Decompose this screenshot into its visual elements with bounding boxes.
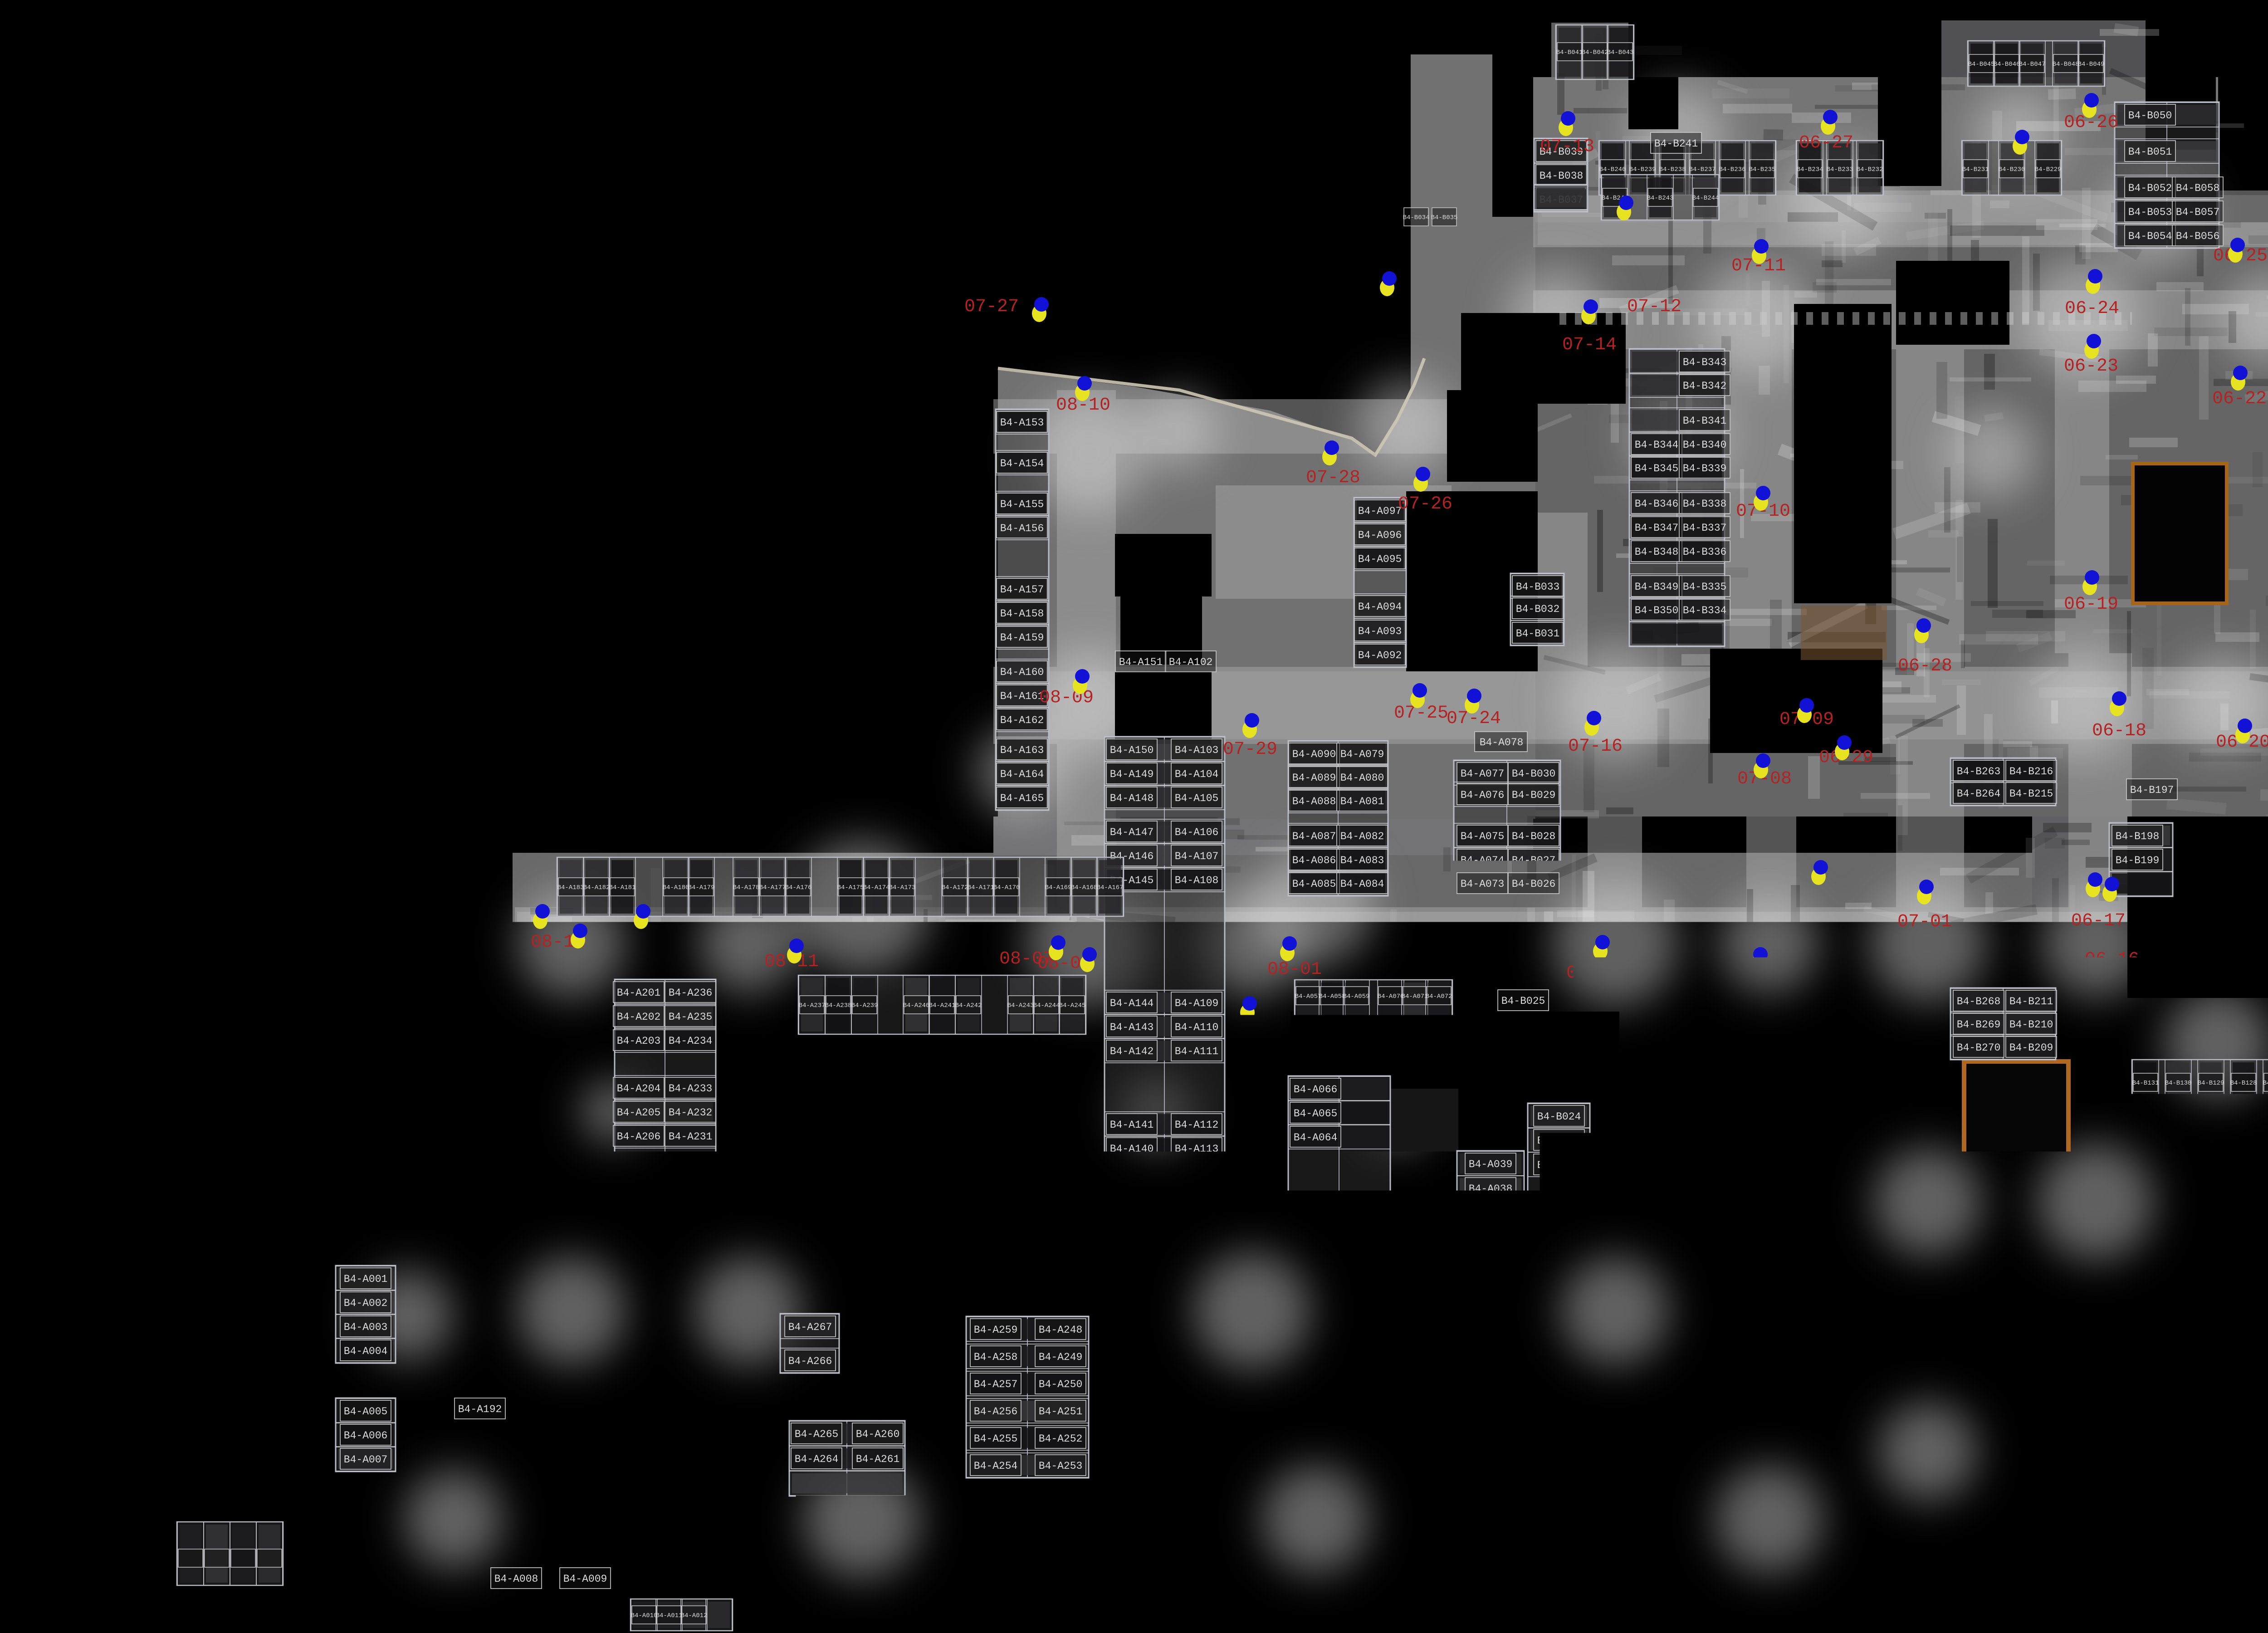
svg-text:B4-B201: B4-B201	[1958, 1544, 1984, 1551]
svg-text:B4-A132: B4-A132	[1110, 1415, 1154, 1427]
svg-text:B4-A154: B4-A154	[1000, 458, 1044, 469]
svg-text:B4-B183: B4-B183	[2168, 417, 2212, 429]
svg-text:B4-B367: B4-B367	[1651, 1603, 1695, 1615]
svg-text:B4-B316: B4-B316	[1799, 1157, 1843, 1169]
svg-text:B4-B365: B4-B365	[1651, 1544, 1695, 1556]
svg-text:B4-A093: B4-A093	[1358, 626, 1402, 637]
svg-text:B4-A226: B4-A226	[669, 1299, 713, 1311]
svg-text:B4-B058: B4-B058	[2176, 182, 2220, 194]
svg-text:B4-A216: B4-A216	[617, 1468, 661, 1480]
svg-text:B4-A005: B4-A005	[344, 1406, 388, 1418]
svg-text:B4-A116: B4-A116	[1175, 1240, 1219, 1252]
svg-text:B4-A168: B4-A168	[1071, 884, 1098, 891]
svg-text:B4-B215: B4-B215	[2009, 788, 2053, 800]
svg-text:B4-B182: B4-B182	[2168, 441, 2212, 453]
svg-text:B4-B315: B4-B315	[1799, 1123, 1843, 1134]
svg-text:B4-B225: B4-B225	[2006, 417, 2050, 429]
svg-text:B4-A172: B4-A172	[942, 884, 968, 891]
svg-text:B4-A074: B4-A074	[1461, 855, 1505, 866]
svg-text:B4-B293: B4-B293	[1850, 831, 1894, 843]
svg-text:B4-A156: B4-A156	[1000, 523, 1044, 534]
svg-text:B4-B321: B4-B321	[1799, 1285, 1843, 1296]
svg-text:B4-B306: B4-B306	[1799, 788, 1843, 800]
svg-text:B4-B259: B4-B259	[1953, 548, 1997, 560]
svg-text:B4-A073: B4-A073	[1461, 878, 1505, 890]
svg-text:B4-A119: B4-A119	[1175, 1339, 1219, 1351]
svg-text:B4-B268: B4-B268	[1957, 996, 2001, 1007]
svg-text:B4-A230: B4-A230	[669, 1179, 713, 1191]
svg-text:B4-A121: B4-A121	[1175, 1415, 1219, 1427]
svg-text:B4-A160: B4-A160	[1000, 666, 1044, 678]
svg-text:B4-A106: B4-A106	[1175, 826, 1219, 838]
svg-text:B4-A058: B4-A058	[1294, 1364, 1338, 1375]
svg-text:B4-B292: B4-B292	[1850, 852, 1894, 864]
svg-text:B4-B027: B4-B027	[1512, 855, 1556, 866]
svg-text:B4-B017: B4-B017	[1537, 1339, 1581, 1350]
svg-text:08-18: 08-18	[377, 1541, 432, 1561]
svg-text:B4-A089: B4-A089	[1292, 772, 1336, 784]
svg-text:B4-B346: B4-B346	[1635, 498, 1679, 510]
svg-text:B4-A192: B4-A192	[458, 1403, 502, 1415]
svg-text:B4-B232: B4-B232	[1857, 166, 1883, 173]
svg-text:B4-B310: B4-B310	[1811, 976, 1887, 996]
svg-text:B4-A197: B4-A197	[513, 1261, 557, 1272]
svg-text:B4-B198: B4-B198	[2116, 831, 2160, 842]
svg-text:B4-B031: B4-B031	[1516, 628, 1560, 640]
svg-text:B4-B238: B4-B238	[1659, 166, 1686, 173]
svg-text:B4-B202: B4-B202	[1917, 1544, 1944, 1551]
svg-text:B4-A102: B4-A102	[1169, 656, 1213, 668]
svg-text:B4-B314: B4-B314	[1799, 1099, 1843, 1111]
svg-text:B4-B237: B4-B237	[1689, 166, 1716, 173]
svg-text:B4-B330: B4-B330	[1702, 831, 1746, 843]
svg-text:B4-B363: B4-B363	[1652, 1372, 1696, 1384]
svg-text:B4-B013: B4-B013	[1537, 1460, 1581, 1472]
svg-text:B4-B015: B4-B015	[1537, 1412, 1581, 1423]
svg-text:B4-A117: B4-A117	[1175, 1264, 1219, 1276]
svg-text:B4-A259: B4-A259	[974, 1324, 1018, 1336]
svg-text:B4-B313: B4-B313	[1799, 1076, 1843, 1088]
svg-text:B4-B280: B4-B280	[1850, 1261, 1894, 1273]
svg-text:B4-B194: B4-B194	[2116, 572, 2160, 583]
svg-text:B4-A075: B4-A075	[1461, 831, 1505, 842]
svg-text:B4-B277: B4-B277	[1849, 1349, 1893, 1361]
svg-text:B4-A141: B4-A141	[1110, 1119, 1154, 1131]
svg-text:B4-A177: B4-A177	[759, 884, 786, 891]
svg-text:B4-B349: B4-B349	[1635, 581, 1679, 593]
svg-text:B4-A028: B4-A028	[1469, 1558, 1513, 1569]
svg-text:B4-A253: B4-A253	[1039, 1460, 1083, 1472]
svg-text:B4-B320: B4-B320	[1799, 1261, 1843, 1273]
svg-text:B4-B338: B4-B338	[1683, 498, 1727, 510]
svg-text:B4-A167: B4-A167	[1097, 884, 1124, 891]
svg-text:B4-B343: B4-B343	[1683, 357, 1727, 368]
svg-text:B4-B203: B4-B203	[1874, 1544, 1901, 1551]
svg-text:B4-A251: B4-A251	[1039, 1406, 1083, 1418]
svg-text:B4-A235: B4-A235	[669, 1011, 713, 1023]
svg-text:B4-B204: B4-B204	[1838, 1544, 1864, 1551]
svg-text:B4-B056: B4-B056	[2176, 230, 2220, 242]
svg-text:B4-B219: B4-B219	[2006, 584, 2050, 596]
svg-text:B4-B190: B4-B190	[2117, 381, 2161, 393]
svg-text:B4-A227: B4-A227	[669, 1275, 713, 1287]
svg-text:07-12: 07-12	[1627, 297, 1681, 317]
svg-text:B4-A084: B4-A084	[1340, 878, 1384, 890]
svg-text:B4-A056: B4-A056	[1294, 1439, 1338, 1451]
svg-text:B4-A012: B4-A012	[681, 1612, 708, 1619]
svg-text:B4-B220: B4-B220	[2006, 548, 2050, 560]
svg-text:B4-A234: B4-A234	[669, 1035, 713, 1047]
svg-text:B4-B184: B4-B184	[2168, 381, 2212, 393]
svg-text:B4-B049: B4-B049	[2078, 61, 2105, 68]
svg-text:B4-A252: B4-A252	[1039, 1433, 1083, 1445]
svg-text:B4-A082: B4-A082	[1340, 831, 1384, 842]
svg-text:B4-B222: B4-B222	[2006, 500, 2050, 512]
svg-text:B4-B195: B4-B195	[2116, 596, 2160, 607]
svg-text:07-18: 07-18	[1565, 1055, 1620, 1075]
svg-text:B4-B282: B4-B282	[1850, 1204, 1894, 1216]
svg-text:B4-A040: B4-A040	[1343, 1215, 1387, 1227]
svg-text:B4-A195: B4-A195	[513, 1308, 557, 1320]
svg-text:B4-A090: B4-A090	[1292, 748, 1336, 760]
svg-text:07-06: 07-06	[1730, 999, 1785, 1020]
svg-text:B4-B211: B4-B211	[2009, 996, 2053, 1007]
svg-text:B4-A175: B4-A175	[837, 884, 864, 891]
svg-text:B4-B045: B4-B045	[1968, 61, 1995, 68]
svg-text:B4-A001: B4-A001	[344, 1273, 388, 1285]
svg-text:B4-A053: B4-A053	[1294, 1541, 1338, 1553]
svg-text:B4-B196: B4-B196	[2116, 620, 2160, 631]
svg-text:B4-B028: B4-B028	[1512, 831, 1556, 842]
svg-text:07-03: 07-03	[2010, 1453, 2065, 1473]
svg-text:08-21: 08-21	[885, 1555, 940, 1575]
svg-text:B4-B236: B4-B236	[1719, 166, 1746, 173]
svg-text:B4-B038: B4-B038	[1540, 170, 1584, 182]
svg-text:B4-A057: B4-A057	[1295, 993, 1322, 1000]
svg-text:B4-B358: B4-B358	[1651, 1024, 1695, 1036]
svg-text:B4-A265: B4-A265	[795, 1428, 839, 1440]
svg-text:B4-B231: B4-B231	[1962, 166, 1989, 173]
svg-text:B4-B019: B4-B019	[1537, 1257, 1581, 1268]
svg-text:B4-B254: B4-B254	[1953, 417, 1997, 429]
svg-text:B4-A065: B4-A065	[1294, 1108, 1338, 1120]
svg-text:B4-B240: B4-B240	[1599, 166, 1626, 173]
svg-text:B4-A129: B4-A129	[1110, 1517, 1154, 1529]
svg-text:B4-B351: B4-B351	[1635, 629, 1679, 640]
svg-text:B4-B357: B4-B357	[1651, 994, 1695, 1006]
svg-text:B4-B227: B4-B227	[2006, 357, 2050, 369]
svg-text:B4-A169: B4-A169	[1045, 884, 1072, 891]
svg-text:B4-B269: B4-B269	[1957, 1019, 2001, 1031]
svg-text:B4-A159: B4-A159	[1000, 632, 1044, 644]
svg-text:B4-A213: B4-A213	[617, 1372, 661, 1384]
svg-text:B4-B048: B4-B048	[2053, 61, 2079, 68]
svg-text:B4-A260: B4-A260	[856, 1428, 900, 1440]
svg-text:B4-A043: B4-A043	[1343, 1315, 1387, 1327]
svg-text:B4-A263: B4-A263	[795, 1478, 839, 1490]
svg-text:B4-A267: B4-A267	[788, 1321, 832, 1333]
svg-text:07-17: 07-17	[1566, 963, 1621, 983]
svg-text:B4-B130: B4-B130	[2165, 1080, 2192, 1087]
svg-text:B4-B340: B4-B340	[1683, 439, 1727, 451]
svg-text:B4-B288: B4-B288	[1850, 1042, 1894, 1054]
svg-text:B4-A137: B4-A137	[1110, 1240, 1154, 1252]
svg-text:B4-A124: B4-A124	[1175, 1517, 1219, 1529]
svg-text:B4-A130: B4-A130	[1110, 1463, 1154, 1475]
svg-text:B4-A183: B4-A183	[557, 884, 584, 891]
svg-text:B4-A232: B4-A232	[669, 1107, 713, 1119]
svg-text:B4-A244: B4-A244	[1033, 1002, 1060, 1009]
svg-text:B4-A072: B4-A072	[1426, 993, 1452, 1000]
svg-text:B4-B054: B4-B054	[2128, 230, 2172, 242]
svg-text:B4-A140: B4-A140	[1110, 1143, 1154, 1155]
svg-text:B4-A190: B4-A190	[458, 1356, 502, 1368]
svg-text:B4-B359: B4-B359	[1651, 1056, 1695, 1068]
svg-text:B4-B333: B4-B333	[1683, 629, 1727, 640]
svg-text:B4-A061: B4-A061	[1294, 1264, 1338, 1276]
svg-text:B4-B251: B4-B251	[1953, 333, 1997, 345]
svg-text:B4-A064: B4-A064	[1294, 1132, 1338, 1144]
svg-text:B4-A231: B4-A231	[669, 1131, 713, 1143]
svg-text:B4-A131: B4-A131	[1110, 1439, 1154, 1451]
svg-text:B4-B016: B4-B016	[1537, 1363, 1581, 1375]
svg-text:B4-B337: B4-B337	[1683, 522, 1727, 534]
svg-text:B4-B175: B4-B175	[2219, 658, 2263, 670]
svg-text:B4-A108: B4-A108	[1175, 875, 1219, 886]
svg-text:B4-A077: B4-A077	[1461, 768, 1505, 780]
svg-text:08-02: 08-02	[1221, 1026, 1275, 1046]
svg-text:07-26: 07-26	[1398, 494, 1452, 514]
svg-text:B4-A209: B4-A209	[617, 1227, 661, 1239]
svg-text:B4-B021: B4-B021	[1537, 1208, 1581, 1220]
svg-text:B4-A079: B4-A079	[1340, 748, 1384, 760]
svg-text:08-13: 08-13	[579, 1128, 633, 1149]
svg-text:B4-B057: B4-B057	[2176, 206, 2220, 218]
svg-text:B4-A128: B4-A128	[1110, 1541, 1154, 1553]
svg-text:B4-B361: B4-B361	[1652, 1295, 1696, 1307]
svg-text:B4-A171: B4-A171	[968, 884, 994, 891]
svg-text:B4-A193: B4-A193	[513, 1379, 557, 1391]
svg-text:B4-B114: B4-B114	[2198, 1127, 2224, 1134]
svg-text:B4-A038: B4-A038	[1469, 1183, 1513, 1195]
svg-text:B4-B210: B4-B210	[2009, 1019, 2053, 1031]
svg-text:07-16: 07-16	[1568, 736, 1623, 757]
svg-text:B4-B234: B4-B234	[1797, 166, 1823, 173]
svg-text:B4-A041: B4-A041	[1343, 1240, 1387, 1252]
svg-text:B4-A104: B4-A104	[1175, 768, 1219, 780]
svg-text:08-01: 08-01	[1267, 959, 1322, 980]
svg-text:B4-B241: B4-B241	[1654, 138, 1698, 150]
svg-text:B4-B331: B4-B331	[1702, 788, 1746, 800]
svg-text:B4-B224: B4-B224	[2006, 441, 2050, 453]
svg-text:B4-A138: B4-A138	[1110, 1216, 1154, 1227]
svg-text:B4-B325: B4-B325	[1702, 1056, 1746, 1068]
svg-text:B4-A245: B4-A245	[1059, 1002, 1086, 1009]
svg-text:B4-B185: B4-B185	[2168, 357, 2212, 369]
svg-text:B4-A048: B4-A048	[1343, 1463, 1387, 1475]
svg-text:B4-A180: B4-A180	[663, 884, 689, 891]
svg-text:B4-B111: B4-B111	[2176, 1261, 2220, 1272]
svg-text:B4-A201: B4-A201	[617, 987, 661, 999]
svg-text:B4-B260: B4-B260	[1953, 584, 1997, 596]
svg-text:B4-A035: B4-A035	[1469, 1339, 1513, 1351]
svg-text:06-19: 06-19	[2064, 594, 2118, 615]
svg-text:B4-B362: B4-B362	[1652, 1343, 1696, 1354]
svg-text:B4-B323: B4-B323	[1702, 1574, 1746, 1585]
svg-text:B4-B354: B4-B354	[1651, 831, 1695, 843]
svg-text:B4-A011: B4-A011	[656, 1612, 683, 1619]
svg-text:B4-A078: B4-A078	[1480, 737, 1524, 748]
svg-text:08-05: 08-05	[1266, 1588, 1320, 1609]
svg-text:B4-A036: B4-A036	[1469, 1315, 1513, 1327]
svg-text:B4-B186: B4-B186	[2168, 333, 2212, 345]
svg-text:B4-A202: B4-A202	[617, 1011, 661, 1023]
svg-text:B4-B025: B4-B025	[1501, 995, 1545, 1007]
svg-text:B4-A233: B4-A233	[669, 1083, 713, 1095]
svg-text:B4-A237: B4-A237	[799, 1002, 826, 1009]
svg-text:B4-A222: B4-A222	[669, 1421, 713, 1433]
svg-text:B4-A113: B4-A113	[1175, 1143, 1219, 1155]
svg-text:B4-A080: B4-A080	[1340, 772, 1384, 784]
svg-text:B4-A187: B4-A187	[458, 1261, 502, 1272]
svg-text:B4-A162: B4-A162	[1000, 714, 1044, 726]
svg-text:B4-B129: B4-B129	[2198, 1080, 2224, 1087]
svg-text:B4-A057: B4-A057	[1294, 1415, 1338, 1427]
svg-text:06-23: 06-23	[2064, 356, 2118, 376]
svg-text:B4-A092: B4-A092	[1358, 650, 1402, 661]
svg-text:B4-A188: B4-A188	[458, 1284, 502, 1296]
svg-text:B4-B228: B4-B228	[2006, 333, 2050, 345]
svg-text:07-13: 07-13	[1540, 137, 1594, 157]
svg-text:B4-B286: B4-B286	[1850, 1099, 1894, 1111]
svg-text:B4-B344: B4-B344	[1635, 439, 1679, 451]
svg-text:B4-B197: B4-B197	[2130, 784, 2174, 796]
svg-text:07-29: 07-29	[1223, 739, 1277, 760]
svg-text:B4-A157: B4-A157	[1000, 584, 1044, 596]
svg-text:B4-A153: B4-A153	[1000, 417, 1044, 429]
svg-text:B4-A013: B4-A013	[706, 1612, 733, 1619]
svg-text:B4-A135: B4-A135	[1110, 1315, 1154, 1327]
svg-text:B4-A163: B4-A163	[1000, 744, 1044, 756]
svg-text:B4-A243: B4-A243	[1007, 1002, 1034, 1009]
svg-text:B4-B047: B4-B047	[2019, 61, 2046, 68]
svg-text:B4-B014: B4-B014	[1537, 1436, 1581, 1448]
svg-text:B4-A059: B4-A059	[1294, 1339, 1338, 1351]
svg-text:B4-B317: B4-B317	[1799, 1180, 1843, 1192]
svg-text:B4-A266: B4-A266	[788, 1355, 832, 1367]
svg-text:B4-A161: B4-A161	[1000, 690, 1044, 702]
svg-text:07-01: 07-01	[1897, 912, 1952, 932]
svg-text:B4-A248: B4-A248	[1039, 1324, 1083, 1336]
svg-text:B4-A095: B4-A095	[1358, 553, 1402, 565]
svg-text:06-24: 06-24	[2065, 298, 2119, 319]
svg-text:B4-B239: B4-B239	[1629, 166, 1656, 173]
svg-text:B4-B230: B4-B230	[1999, 166, 2025, 173]
svg-text:07-02: 07-02	[1899, 1205, 1954, 1225]
svg-text:B4-A103: B4-A103	[1175, 744, 1219, 756]
svg-text:B4-B366: B4-B366	[1651, 1574, 1695, 1585]
svg-text:B4-B042: B4-B042	[1582, 49, 1608, 56]
svg-text:B4-B022: B4-B022	[1537, 1159, 1581, 1171]
svg-text:B4-A178: B4-A178	[733, 884, 760, 891]
svg-text:B4-A240: B4-A240	[903, 1002, 930, 1009]
svg-text:B4-A258: B4-A258	[974, 1351, 1018, 1363]
svg-text:B4-A139: B4-A139	[1110, 1167, 1154, 1179]
svg-text:B4-A134: B4-A134	[1110, 1339, 1154, 1351]
svg-text:B4-B223: B4-B223	[2006, 465, 2050, 477]
svg-text:B4-B264: B4-B264	[1957, 788, 2001, 800]
svg-text:B4-A204: B4-A204	[617, 1083, 661, 1095]
svg-text:B4-B128: B4-B128	[2230, 1080, 2257, 1087]
svg-text:B4-A264: B4-A264	[795, 1453, 839, 1465]
svg-text:B4-A158: B4-A158	[1000, 608, 1044, 620]
svg-text:B4-A076: B4-A076	[1461, 789, 1505, 801]
svg-text:B4-A123: B4-A123	[1175, 1463, 1219, 1475]
svg-text:B4-B311: B4-B311	[1799, 1019, 1843, 1031]
svg-text:B4-B112: B4-B112	[2132, 1127, 2159, 1134]
svg-text:B4-A191: B4-A191	[458, 1379, 502, 1391]
svg-text:B4-A133: B4-A133	[1110, 1363, 1154, 1375]
svg-text:B4-A081: B4-A081	[1340, 796, 1384, 807]
svg-text:B4-A110: B4-A110	[1175, 1022, 1219, 1033]
svg-text:B4-A120: B4-A120	[1175, 1363, 1219, 1375]
svg-text:B4-A254: B4-A254	[974, 1460, 1018, 1472]
svg-text:B4-A059: B4-A059	[1343, 993, 1370, 1000]
svg-text:B4-A176: B4-A176	[785, 884, 812, 891]
svg-text:B4-A009: B4-A009	[563, 1573, 607, 1585]
svg-text:B4-B217: B4-B217	[2006, 632, 2050, 644]
svg-text:B4-B339: B4-B339	[1683, 463, 1727, 474]
svg-text:B4-A218: B4-A218	[617, 1516, 661, 1528]
svg-text:B4-A105: B4-A105	[1175, 792, 1219, 804]
svg-text:B4-A032: B4-A032	[1469, 1437, 1513, 1448]
svg-text:B4-A215: B4-A215	[617, 1421, 661, 1433]
svg-text:B4-A250: B4-A250	[1039, 1379, 1083, 1390]
svg-text:B4-A170: B4-A170	[993, 884, 1020, 891]
svg-text:B4-A249: B4-A249	[1039, 1351, 1083, 1363]
svg-text:B4-B352: B4-B352	[1651, 766, 1695, 777]
svg-text:B4-A228: B4-A228	[669, 1227, 713, 1239]
svg-text:B4-A224: B4-A224	[669, 1372, 713, 1384]
svg-text:B4-A182: B4-A182	[583, 884, 610, 891]
svg-text:B4-B348: B4-B348	[1635, 546, 1679, 558]
svg-text:B4-B053: B4-B053	[2128, 206, 2172, 218]
svg-text:B4-A221: B4-A221	[669, 1468, 713, 1480]
svg-text:B4-B350: B4-B350	[1635, 605, 1679, 616]
svg-text:B4-B226: B4-B226	[2006, 381, 2050, 393]
svg-text:B4-B216: B4-B216	[2009, 766, 2053, 777]
svg-text:B4-A094: B4-A094	[1358, 601, 1402, 613]
svg-text:B4-B024: B4-B024	[1537, 1111, 1581, 1123]
svg-text:B4-B115: B4-B115	[2230, 1127, 2257, 1134]
svg-text:B4-A242: B4-A242	[955, 1002, 982, 1009]
svg-text:B4-A203: B4-A203	[617, 1035, 661, 1047]
svg-text:B4-A115: B4-A115	[1175, 1216, 1219, 1227]
svg-text:B4-A205: B4-A205	[617, 1107, 661, 1119]
svg-text:B4-B252: B4-B252	[1953, 357, 1997, 369]
svg-text:B4-A229: B4-A229	[669, 1203, 713, 1215]
svg-text:B4-B244: B4-B244	[1692, 195, 1719, 202]
svg-text:B4-A208: B4-A208	[617, 1203, 661, 1215]
svg-text:B4-A055: B4-A055	[1294, 1463, 1338, 1475]
svg-text:B4-A060: B4-A060	[1294, 1315, 1338, 1327]
svg-text:B4-B029: B4-B029	[1512, 789, 1556, 801]
svg-text:B4-A151: B4-A151	[1119, 656, 1163, 668]
svg-text:B4-B335: B4-B335	[1683, 581, 1727, 593]
svg-text:B4-A214: B4-A214	[617, 1397, 661, 1408]
svg-text:B4-A150: B4-A150	[1110, 744, 1154, 756]
svg-text:B4-B113: B4-B113	[2165, 1127, 2192, 1134]
